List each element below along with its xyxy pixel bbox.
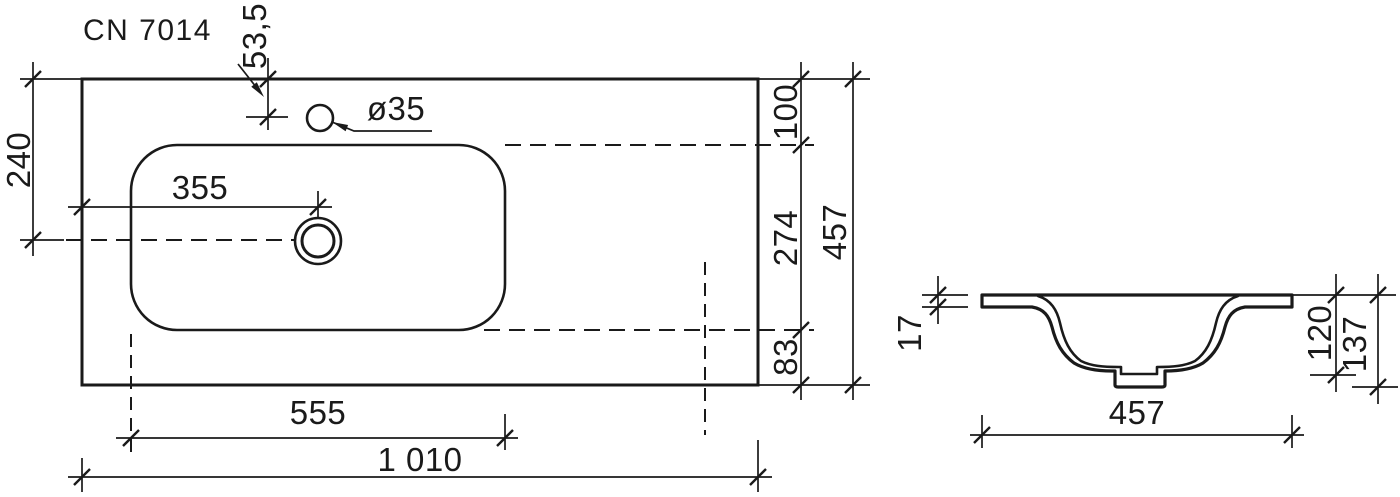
- arrowhead-faucet-diameter: [332, 122, 348, 131]
- drawing-lines: [20, 58, 1398, 492]
- leader-arrowheads: [251, 82, 348, 131]
- dim-label-faucet-diameter: ø35: [367, 90, 425, 127]
- dim-label-center-from-top: 240: [0, 132, 37, 189]
- dim-label-faucet-offset: 53,5: [236, 3, 273, 69]
- dim-label-top-to-basin: 100: [767, 84, 804, 141]
- section-inner-profile: [1038, 296, 1238, 374]
- faucet-hole: [307, 105, 333, 131]
- model-number-label: CN 7014: [83, 14, 212, 47]
- dim-label-inner-depth: 120: [1301, 305, 1338, 362]
- dim-label-section-depth: 457: [1109, 394, 1166, 431]
- dim-label-basin-to-bottom: 83: [767, 338, 804, 376]
- drain-inner-circle: [302, 225, 334, 257]
- dim-label-basin-depth: 274: [767, 210, 804, 267]
- dim-label-basin-width: 555: [290, 394, 347, 431]
- dim-label-total-height: 137: [1336, 316, 1373, 373]
- dim-label-total-depth: 457: [816, 204, 853, 261]
- dim-label-rim-thickness: 17: [891, 314, 928, 352]
- section-view: [982, 295, 1292, 387]
- dim-17: [922, 276, 968, 324]
- technical-drawing-canvas: CN 7014 53,5 240 ø35 355 100 274 457 83 …: [0, 0, 1400, 497]
- dim-label-total-width: 1 010: [377, 441, 462, 478]
- washbasin-drawing: CN 7014 53,5 240 ø35 355 100 274 457 83 …: [0, 0, 1400, 497]
- dim-label-drain-from-left: 355: [172, 169, 229, 206]
- plan-view: [66, 79, 814, 456]
